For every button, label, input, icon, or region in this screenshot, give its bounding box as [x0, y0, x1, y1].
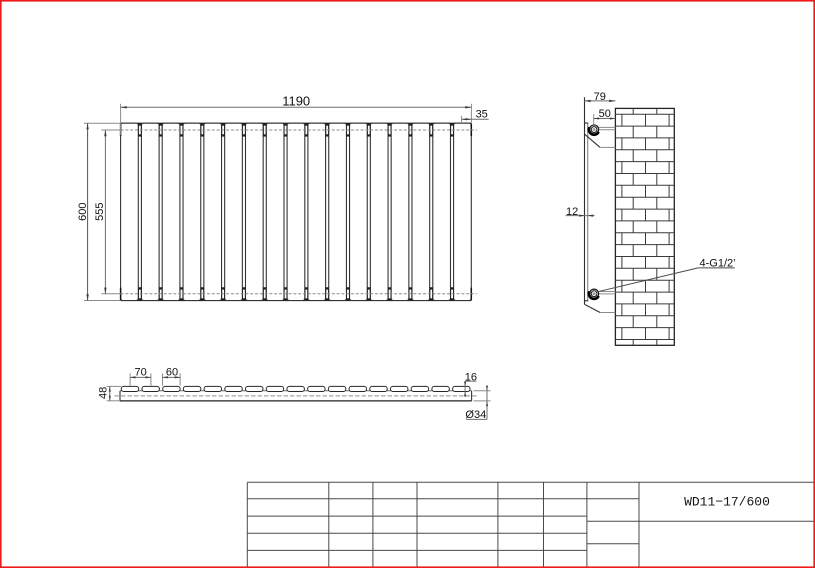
- svg-text:48: 48: [97, 387, 109, 399]
- svg-text:1190: 1190: [282, 93, 310, 108]
- svg-text:50: 50: [599, 108, 611, 120]
- svg-text:60: 60: [166, 367, 178, 379]
- svg-text:600: 600: [77, 203, 89, 221]
- svg-text:79: 79: [594, 91, 606, 103]
- svg-text:555: 555: [94, 203, 106, 221]
- svg-text:12: 12: [566, 206, 578, 218]
- svg-text:35: 35: [476, 108, 488, 120]
- svg-text:WD11−17/600: WD11−17/600: [684, 495, 770, 510]
- svg-text:70: 70: [134, 367, 146, 379]
- svg-text:16: 16: [465, 371, 477, 383]
- svg-text:4-G1/2’: 4-G1/2’: [700, 257, 736, 269]
- svg-text:Ø34: Ø34: [465, 409, 486, 421]
